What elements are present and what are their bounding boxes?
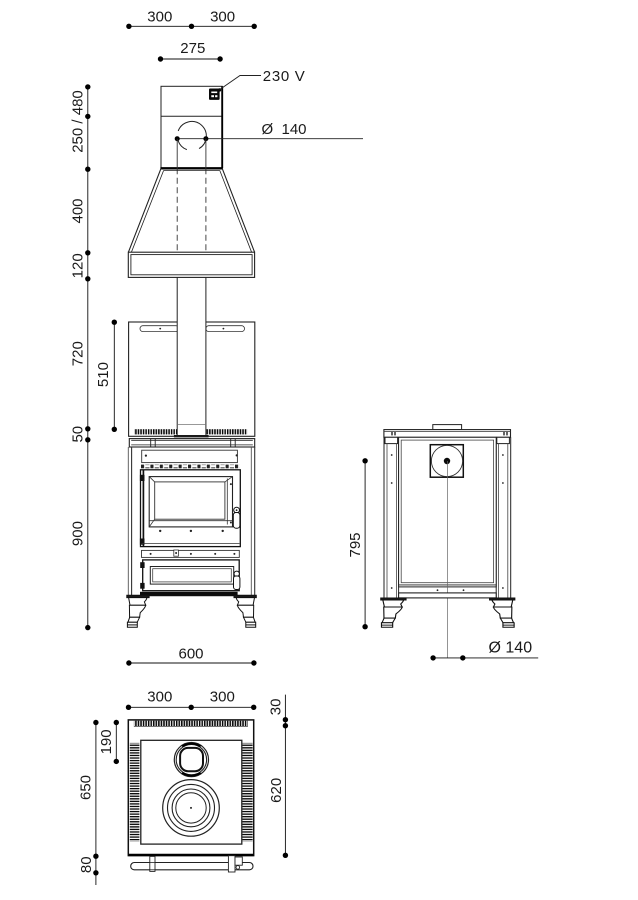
svg-text:190: 190 [98,729,115,754]
svg-text:620: 620 [268,778,285,803]
svg-text:900: 900 [70,521,87,546]
svg-text:Ø 140: Ø 140 [489,639,533,656]
svg-text:80: 80 [78,856,95,873]
svg-text:30: 30 [268,699,285,716]
svg-text:600: 600 [178,645,203,662]
svg-text:120: 120 [70,253,87,278]
svg-text:650: 650 [78,775,95,800]
svg-text:275: 275 [180,40,205,57]
svg-text:510: 510 [95,362,112,387]
svg-text:300: 300 [210,689,235,706]
svg-text:795: 795 [347,532,364,557]
svg-text:250 / 480: 250 / 480 [70,90,87,153]
svg-text:300: 300 [147,8,172,25]
svg-text:300: 300 [147,689,172,706]
svg-text:230 V: 230 V [263,68,306,85]
svg-text:50: 50 [70,426,87,443]
svg-text:400: 400 [70,198,87,223]
svg-text:Ø 140: Ø 140 [262,121,307,138]
svg-text:720: 720 [70,341,87,366]
svg-text:300: 300 [210,8,235,25]
